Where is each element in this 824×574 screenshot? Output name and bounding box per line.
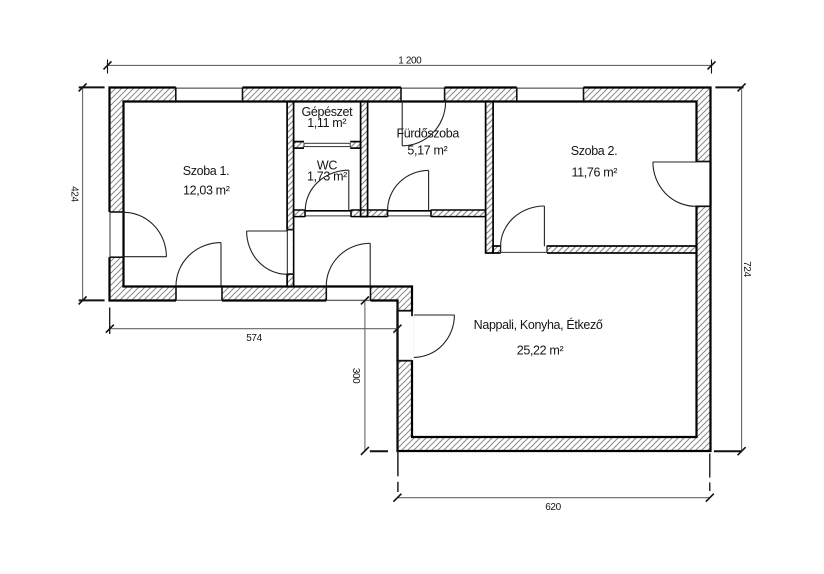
- svg-text:620: 620: [545, 502, 561, 513]
- svg-text:300: 300: [350, 368, 361, 384]
- svg-text:1,11 m²: 1,11 m²: [307, 116, 346, 130]
- svg-text:424: 424: [68, 186, 79, 202]
- svg-text:Szoba 2.: Szoba 2.: [571, 144, 618, 158]
- svg-text:Fürdőszoba: Fürdőszoba: [396, 127, 459, 141]
- svg-text:Szoba 1.: Szoba 1.: [183, 164, 230, 178]
- svg-text:11,76 m²: 11,76 m²: [571, 166, 617, 180]
- svg-text:1,73 m²: 1,73 m²: [307, 169, 347, 183]
- svg-text:12,03 m²: 12,03 m²: [183, 183, 230, 197]
- svg-text:574: 574: [246, 333, 262, 344]
- svg-text:1 200: 1 200: [398, 55, 422, 66]
- svg-text:25,22 m²: 25,22 m²: [517, 344, 564, 358]
- svg-text:5,17 m²: 5,17 m²: [407, 144, 447, 158]
- svg-text:724: 724: [741, 261, 752, 277]
- svg-text:Nappali, Konyha, Étkező: Nappali, Konyha, Étkező: [474, 317, 603, 332]
